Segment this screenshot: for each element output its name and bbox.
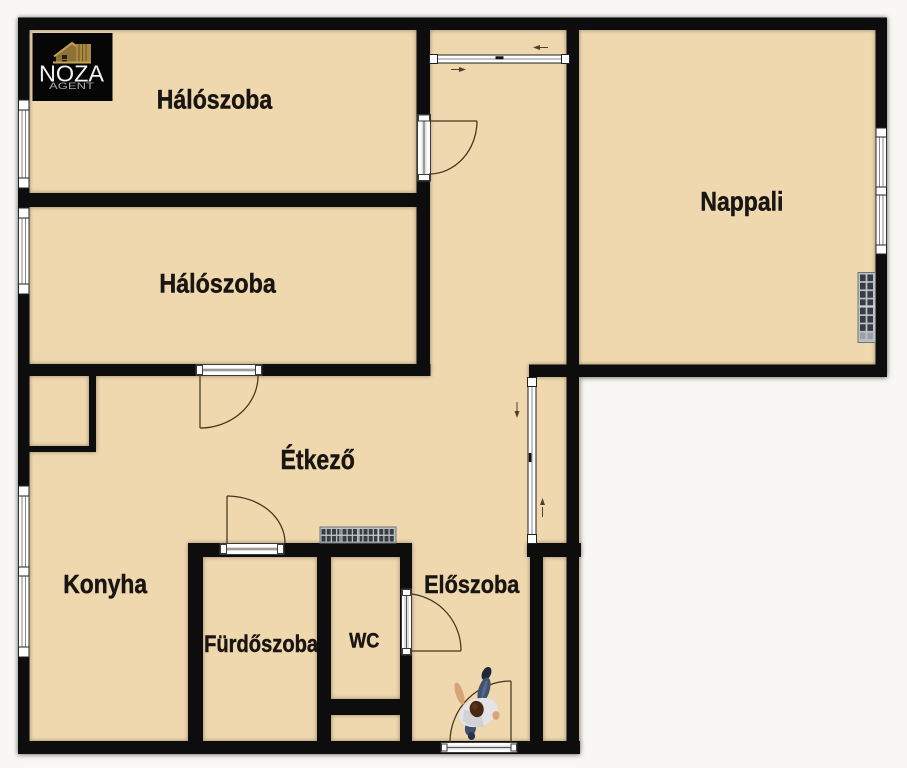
svg-text:Előszoba: Előszoba	[424, 572, 519, 599]
svg-text:Konyha: Konyha	[63, 571, 148, 599]
svg-text:Nappali: Nappali	[700, 185, 783, 216]
svg-text:Fürdőszoba: Fürdőszoba	[204, 631, 319, 658]
svg-text:Hálószoba: Hálószoba	[159, 269, 276, 299]
svg-text:AGENT: AGENT	[49, 81, 95, 91]
svg-text:WC: WC	[349, 628, 379, 652]
svg-text:Étkező: Étkező	[281, 444, 355, 475]
svg-text:Hálószoba: Hálószoba	[157, 85, 273, 115]
